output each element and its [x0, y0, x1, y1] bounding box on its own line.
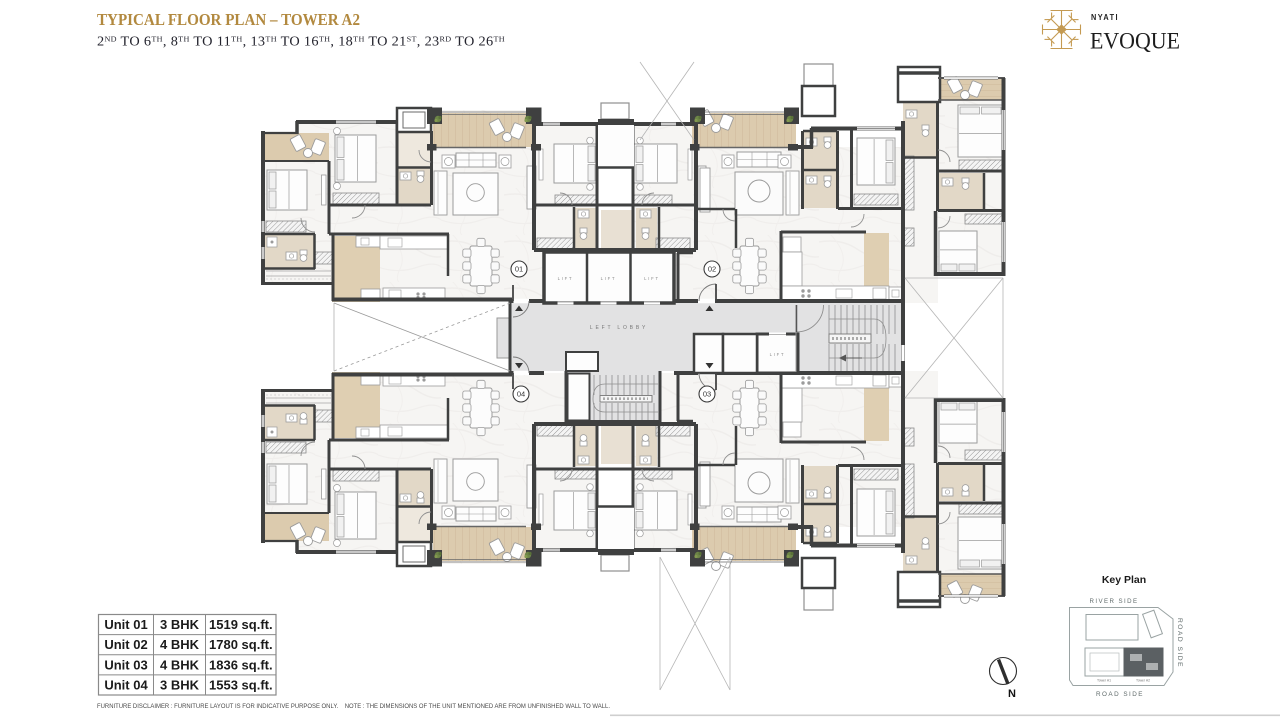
svg-text:N: N	[1008, 688, 1016, 700]
svg-text:NYATI: NYATI	[1091, 13, 1119, 22]
svg-text:3 BHK: 3 BHK	[160, 617, 200, 632]
svg-text:LIFT: LIFT	[558, 276, 574, 281]
svg-text:01: 01	[515, 265, 523, 274]
svg-text:FURNITURE DISCLAIMER : FURNITU: FURNITURE DISCLAIMER : FURNITURE LAYOUT …	[97, 703, 610, 710]
svg-text:Unit 03: Unit 03	[104, 657, 147, 672]
svg-text:LIFT: LIFT	[644, 276, 660, 281]
svg-text:ROAD SIDE: ROAD SIDE	[1096, 691, 1144, 698]
svg-text:1553 sq.ft.: 1553 sq.ft.	[209, 678, 273, 693]
svg-text:3 BHK: 3 BHK	[160, 678, 200, 693]
svg-text:04: 04	[517, 390, 525, 399]
svg-text:4 BHK: 4 BHK	[160, 637, 200, 652]
svg-text:4 BHK: 4 BHK	[160, 657, 200, 672]
svg-text:Key Plan: Key Plan	[1102, 574, 1146, 586]
svg-text:LEFT LOBBY: LEFT LOBBY	[590, 325, 648, 331]
svg-text:Unit 02: Unit 02	[104, 637, 147, 652]
svg-text:Tower A2: Tower A2	[1136, 679, 1150, 683]
svg-text:ROAD SIDE: ROAD SIDE	[1176, 618, 1183, 668]
svg-text:Unit 01: Unit 01	[104, 617, 147, 632]
svg-text:Unit 04: Unit 04	[104, 678, 148, 693]
svg-text:02: 02	[708, 265, 716, 274]
svg-text:1836 sq.ft.: 1836 sq.ft.	[209, 657, 273, 672]
svg-text:TYPICAL FLOOR PLAN – TOWER A2: TYPICAL FLOOR PLAN – TOWER A2	[97, 10, 360, 29]
svg-text:LIFT: LIFT	[770, 352, 786, 357]
svg-text:LIFT: LIFT	[601, 276, 617, 281]
svg-text:Tower A1: Tower A1	[1097, 679, 1111, 683]
svg-text:03: 03	[703, 390, 711, 399]
svg-text:RIVER SIDE: RIVER SIDE	[1090, 598, 1139, 605]
svg-text:1780 sq.ft.: 1780 sq.ft.	[209, 637, 273, 652]
svg-text:EVOQUE: EVOQUE	[1090, 29, 1180, 55]
svg-text:1519 sq.ft.: 1519 sq.ft.	[209, 617, 273, 632]
